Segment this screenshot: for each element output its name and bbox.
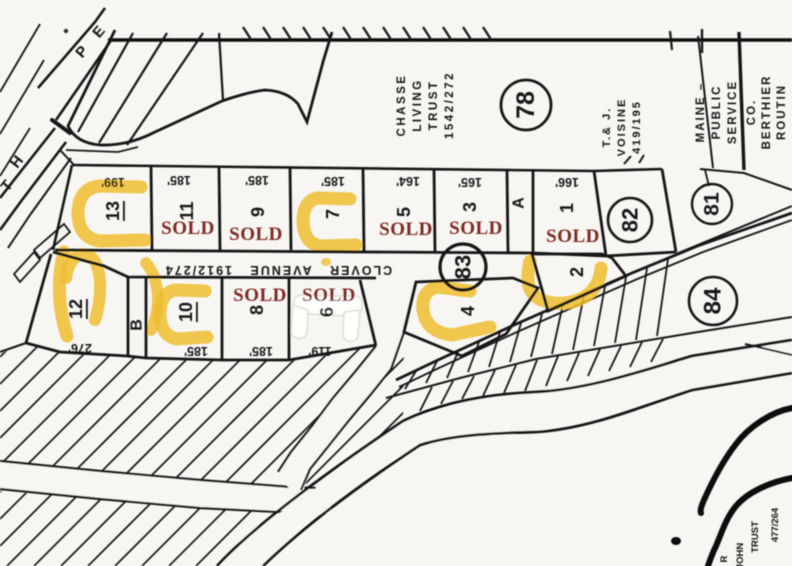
svg-text:477/264: 477/264 (770, 507, 781, 542)
svg-text:SOLD: SOLD (302, 285, 356, 306)
svg-text:7: 7 (323, 209, 343, 219)
svg-text:165': 165' (458, 175, 482, 189)
svg-text:CLOVER AVENUE 1912/274: CLOVER AVENUE 1912/274 (164, 263, 392, 277)
svg-text:166': 166' (555, 175, 579, 189)
svg-text:164': 164' (396, 174, 420, 188)
svg-text:10: 10 (176, 302, 196, 322)
svg-text:84: 84 (700, 287, 727, 314)
svg-text:5: 5 (394, 207, 414, 217)
svg-text:MAINE –PUBLICSERVICE: MAINE –PUBLICSERVICE (695, 80, 739, 144)
svg-text:SOLD: SOLD (229, 224, 283, 245)
svg-text:TRUST: TRUST (750, 521, 761, 553)
svg-text:A: A (511, 197, 528, 209)
svg-text:SOLD: SOLD (379, 219, 433, 240)
svg-text:13: 13 (103, 201, 123, 221)
svg-text:SOLD: SOLD (546, 226, 600, 247)
svg-text:B: B (129, 319, 146, 331)
svg-text:6: 6 (317, 307, 337, 317)
svg-text:119': 119' (308, 344, 331, 358)
svg-text:1: 1 (557, 203, 577, 213)
svg-text:185': 185' (249, 344, 273, 358)
svg-text:SOLD: SOLD (233, 285, 287, 306)
svg-text:R: R (719, 555, 730, 562)
svg-text:78: 78 (512, 91, 540, 119)
svg-text:185': 185' (184, 344, 208, 358)
svg-text:185': 185' (321, 174, 345, 188)
svg-text:SOLD: SOLD (161, 218, 215, 239)
svg-text:JOHN: JOHN (735, 543, 746, 566)
svg-text:SOLD: SOLD (449, 218, 503, 239)
svg-text:81: 81 (701, 192, 724, 216)
svg-text:8: 8 (247, 305, 267, 315)
svg-text:185': 185' (167, 173, 191, 187)
svg-text:185': 185' (245, 173, 269, 187)
svg-text:199': 199' (101, 175, 125, 189)
svg-text:2: 2 (567, 267, 587, 277)
svg-text:9: 9 (248, 207, 268, 217)
svg-text:12: 12 (66, 299, 86, 319)
svg-text:276': 276' (68, 341, 92, 355)
svg-text:3: 3 (460, 202, 480, 212)
svg-text:82: 82 (618, 208, 643, 232)
svg-text:4: 4 (458, 306, 478, 316)
svg-text:83: 83 (451, 255, 476, 279)
